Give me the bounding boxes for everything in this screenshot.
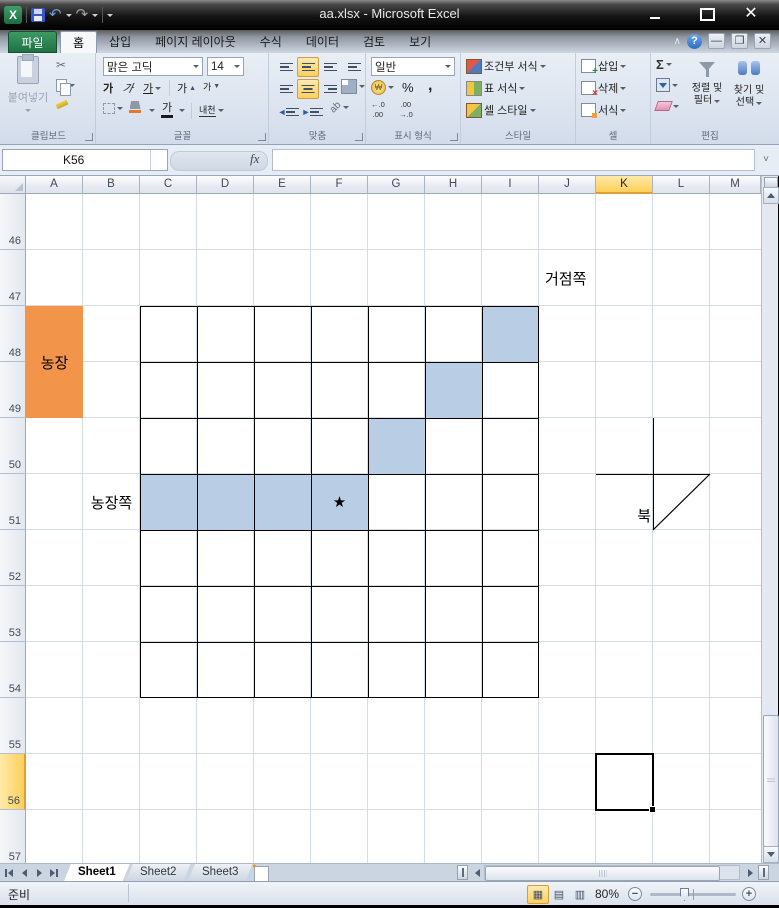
- column-header-G[interactable]: G: [368, 176, 425, 194]
- ribbon-tab-데이터[interactable]: 데이터: [294, 31, 351, 53]
- brush-icon: [56, 100, 69, 110]
- font-size-select[interactable]: 14: [207, 57, 244, 76]
- number-group: 일반 ₩ % , ←.0.00 .00→.0 표시 형식: [366, 53, 461, 144]
- grid-border-line: [368, 307, 369, 697]
- eraser-icon: [654, 101, 673, 111]
- cell-text-F51: ★: [311, 474, 368, 530]
- row-header-49[interactable]: 49: [0, 362, 26, 418]
- zoom-level-label[interactable]: 80%: [590, 887, 624, 901]
- increase-decimal-button[interactable]: ←.0.00: [371, 101, 385, 119]
- north-label: 북: [629, 504, 651, 526]
- column-header-J[interactable]: J: [539, 176, 596, 194]
- increase-indent-button[interactable]: ►: [299, 102, 321, 122]
- column-header-D[interactable]: D: [197, 176, 254, 194]
- paste-button[interactable]: 붙여넣기: [6, 56, 50, 122]
- horizontal-scrollbar[interactable]: [484, 865, 740, 880]
- column-header-H[interactable]: H: [425, 176, 482, 194]
- clipboard-dialog-launcher-icon[interactable]: [85, 133, 93, 141]
- column-header-I[interactable]: I: [482, 176, 539, 194]
- select-all-corner[interactable]: [0, 176, 26, 194]
- ribbon-tabs: 홈삽입페이지 레이아웃수식데이터검토보기: [60, 31, 443, 53]
- vertical-scrollbar[interactable]: [761, 176, 778, 863]
- decrease-indent-button[interactable]: ◄: [275, 102, 297, 122]
- north-marker-diagonal: [653, 474, 710, 530]
- align-center-button[interactable]: [297, 79, 319, 99]
- paste-dropdown-icon: [25, 109, 31, 112]
- window-close-button[interactable]: ✕: [737, 3, 765, 24]
- vertical-scroll-thumb[interactable]: [763, 715, 779, 847]
- conditional-formatting-button[interactable]: 조건부 서식: [466, 58, 546, 74]
- status-ready-label: 준비: [8, 886, 30, 903]
- font-color-dropdown-icon[interactable]: [179, 109, 185, 112]
- file-tab[interactable]: 파일: [8, 31, 57, 53]
- grid-border-line: [141, 530, 538, 531]
- align-middle-button[interactable]: [297, 57, 319, 77]
- paste-icon: [17, 56, 39, 84]
- row-header-51[interactable]: 51: [0, 474, 26, 530]
- expand-formula-bar-icon[interactable]: ˅: [757, 151, 775, 169]
- decrease-decimal-button[interactable]: .00→.0: [399, 101, 413, 119]
- cut-button[interactable]: ✂: [56, 58, 66, 72]
- title-bar: X ↶ ↷ aa.xlsx - Microsoft Excel ✕: [0, 0, 779, 30]
- table-icon: [466, 81, 482, 96]
- sheet-grid[interactable]: ABCDEFGHIJKLM 464748495051525354555657 농…: [0, 176, 761, 863]
- row-header-52[interactable]: 52: [0, 530, 26, 586]
- cell-text-B51: 농장쪽: [83, 474, 140, 530]
- workbook-minimize-button[interactable]: —: [708, 33, 725, 49]
- sort-filter-button[interactable]: 정렬 및 필터: [687, 56, 727, 136]
- font-name-select[interactable]: 맑은 고딕: [103, 57, 203, 76]
- next-sheet-button[interactable]: [32, 865, 46, 880]
- styles-group: 조건부 서식표 서식셀 스타일 스타일: [461, 53, 576, 144]
- sheet-tab-Sheet1[interactable]: Sheet1: [64, 864, 130, 881]
- column-header-M[interactable]: M: [710, 176, 761, 194]
- row-header-50[interactable]: 50: [0, 418, 26, 474]
- ribbon-tab-페이지 레이아웃[interactable]: 페이지 레이아웃: [143, 31, 248, 53]
- grid-border-line: [141, 418, 538, 419]
- alignment-dialog-launcher-icon[interactable]: [355, 133, 363, 141]
- percent-format-button[interactable]: %: [402, 80, 414, 95]
- workbook-restore-button[interactable]: ❐: [731, 33, 748, 49]
- window-maximize-button[interactable]: [694, 5, 721, 24]
- grow-font-button[interactable]: 가▲: [177, 80, 196, 96]
- formula-bar: K56 fx ˅: [0, 145, 779, 176]
- borders-icon: [103, 103, 115, 114]
- ins-cell-icon: [581, 59, 596, 73]
- del-cell-icon: [581, 81, 596, 95]
- fill-bucket-icon: [130, 101, 141, 109]
- phonetic-button[interactable]: 내천: [199, 103, 224, 117]
- grid-border-line: [141, 642, 538, 643]
- grid-border-line: [141, 362, 538, 363]
- row-header-57[interactable]: 57: [0, 810, 26, 863]
- name-box[interactable]: K56: [2, 149, 168, 171]
- grid-border-line: [254, 307, 255, 697]
- scissors-icon: ✂: [56, 58, 66, 72]
- zoom-in-button[interactable]: +: [742, 887, 756, 901]
- column-header-A[interactable]: A: [26, 176, 83, 194]
- workbook-close-button[interactable]: ✕: [754, 33, 771, 49]
- align-bottom-button[interactable]: [319, 57, 341, 77]
- row-header-46[interactable]: 46: [0, 194, 26, 250]
- row-header-47[interactable]: 47: [0, 250, 26, 306]
- column-header-L[interactable]: L: [653, 176, 710, 194]
- ribbon-tab-삽입[interactable]: 삽입: [97, 31, 143, 53]
- delete-cells-button[interactable]: 삭제: [581, 80, 626, 96]
- format-as-table-button[interactable]: 표 서식: [466, 80, 525, 96]
- sheet-tab-Sheet2[interactable]: Sheet2: [126, 864, 190, 881]
- ribbon-tab-홈[interactable]: 홈: [60, 31, 97, 53]
- fill-down-icon: [656, 78, 670, 92]
- zoom-slider[interactable]: [650, 893, 736, 896]
- last-sheet-button[interactable]: [47, 865, 61, 880]
- normal-view-button[interactable]: ▦: [527, 885, 549, 904]
- insert-cells-button[interactable]: 삽입: [581, 58, 626, 74]
- conditional-formatting-icon: [466, 59, 482, 74]
- merge-icon: [341, 79, 357, 94]
- font-color-button[interactable]: 가: [161, 99, 173, 118]
- autosum-button[interactable]: Σ: [656, 57, 672, 72]
- scroll-right-button[interactable]: [743, 865, 757, 880]
- find-select-button[interactable]: 찾기 및 선택: [729, 56, 769, 136]
- selected-cell-K56[interactable]: [595, 753, 654, 811]
- scroll-left-button[interactable]: [470, 865, 484, 880]
- number-dialog-launcher-icon[interactable]: [450, 133, 458, 141]
- copy-button[interactable]: [56, 79, 75, 92]
- zoom-slider-center-tick: [693, 889, 694, 900]
- align-right-button[interactable]: [319, 79, 341, 99]
- format-painter-button[interactable]: [56, 102, 68, 107]
- scroll-down-button[interactable]: [763, 846, 779, 863]
- font-group: 맑은 고딕 14 가 가 가 가▲ 가▼ 가 내천 글꼴: [97, 53, 269, 144]
- align-top-button[interactable]: [275, 57, 297, 77]
- grid-border-line: [141, 586, 538, 587]
- column-header-C[interactable]: C: [140, 176, 197, 194]
- column-header-E[interactable]: E: [254, 176, 311, 194]
- comma-format-button[interactable]: ,: [428, 77, 432, 95]
- ribbon-tab-검토[interactable]: 검토: [351, 31, 397, 53]
- wrap-text-button[interactable]: [343, 57, 365, 77]
- number-format-select[interactable]: 일반: [371, 57, 455, 76]
- sheet-tab-Sheet3[interactable]: Sheet3: [188, 864, 252, 881]
- horizontal-scroll-thumb[interactable]: [485, 866, 720, 881]
- cell-styles-icon: [466, 103, 482, 118]
- help-icon[interactable]: ?: [687, 34, 702, 49]
- row-header-55[interactable]: 55: [0, 698, 26, 754]
- alignment-group: ◄ ► ab 맞춤: [270, 53, 366, 144]
- divider: [128, 884, 129, 902]
- column-header-K[interactable]: K: [596, 176, 653, 194]
- window-minimize-button[interactable]: [641, 5, 668, 24]
- status-bar: 준비 ▦ ▤ ▥ 80% − +: [0, 881, 779, 905]
- clipboard-group: 붙여넣기 ✂ 클립보드: [2, 53, 96, 144]
- underline-button[interactable]: 가: [143, 80, 161, 96]
- row-header-53[interactable]: 53: [0, 586, 26, 642]
- insert-function-icon[interactable]: fx: [250, 151, 270, 167]
- cell-text-J47: 거점쪽: [539, 250, 596, 306]
- cell-styles-button[interactable]: 셀 스타일: [466, 102, 536, 118]
- formula-input[interactable]: [272, 149, 755, 171]
- row-header-54[interactable]: 54: [0, 642, 26, 698]
- merged-cell-farm[interactable]: 농장: [26, 306, 83, 418]
- grid-border-line: [425, 307, 426, 697]
- currency-format-button[interactable]: ₩: [371, 80, 394, 95]
- row-header-48[interactable]: 48: [0, 306, 26, 362]
- cells-group: 삽입삭제서식 셀: [576, 53, 651, 144]
- first-sheet-button[interactable]: [2, 865, 16, 880]
- column-header-B[interactable]: B: [83, 176, 140, 194]
- ribbon-tab-보기[interactable]: 보기: [397, 31, 443, 53]
- tab-split-handle[interactable]: [457, 865, 468, 880]
- vertical-split-handle-bottom[interactable]: [758, 865, 769, 880]
- align-left-button[interactable]: [275, 79, 297, 99]
- ribbon-tab-수식[interactable]: 수식: [248, 31, 294, 53]
- prev-sheet-button[interactable]: [17, 865, 31, 880]
- zoom-slider-marker[interactable]: [680, 888, 689, 901]
- clear-button[interactable]: [656, 101, 679, 111]
- merge-center-button[interactable]: [341, 79, 365, 94]
- ribbon-tab-row: 파일 홈삽입페이지 레이아웃수식데이터검토보기 ∧ ? — ❐ ✕: [0, 30, 779, 53]
- italic-button[interactable]: 가: [123, 80, 133, 96]
- funnel-icon: [699, 62, 715, 71]
- copy-icon: [56, 79, 67, 92]
- ribbon: 붙여넣기 ✂ 클립보드 맑은 고딕 14 가 가 가 가▲ 가▼ 가 내천 글꼴: [0, 53, 779, 145]
- scroll-up-button[interactable]: [763, 187, 779, 204]
- currency-icon: ₩: [371, 80, 386, 95]
- page-break-view-button[interactable]: ▥: [569, 885, 591, 904]
- collapse-ribbon-icon[interactable]: ∧: [674, 36, 681, 47]
- sheet-tab-bar: Sheet1Sheet2Sheet3: [0, 863, 779, 881]
- fill-color-dropdown-icon[interactable]: [149, 109, 155, 112]
- binoculars-icon: [738, 61, 760, 75]
- fmt-cell-icon: [581, 103, 596, 117]
- format-cells-button[interactable]: 서식: [581, 102, 626, 118]
- row-header-56[interactable]: 56: [0, 754, 26, 810]
- grid-border-line: [482, 307, 483, 697]
- font-dialog-launcher-icon[interactable]: [258, 133, 266, 141]
- shrink-font-button[interactable]: 가▼: [203, 80, 220, 93]
- editing-group: Σ 정렬 및 필터 찾기 및 선택 편집: [651, 53, 769, 144]
- page-layout-view-button[interactable]: ▤: [548, 885, 570, 904]
- column-header-F[interactable]: F: [311, 176, 368, 194]
- fill-button[interactable]: [656, 78, 678, 92]
- grid-border-line: [197, 307, 198, 697]
- bold-button[interactable]: 가: [103, 80, 113, 96]
- zoom-out-button[interactable]: −: [628, 887, 642, 901]
- borders-button[interactable]: [103, 103, 123, 114]
- insert-worksheet-button[interactable]: [254, 866, 269, 882]
- orientation-button[interactable]: ab: [330, 102, 349, 113]
- fill-color-button[interactable]: [129, 101, 141, 113]
